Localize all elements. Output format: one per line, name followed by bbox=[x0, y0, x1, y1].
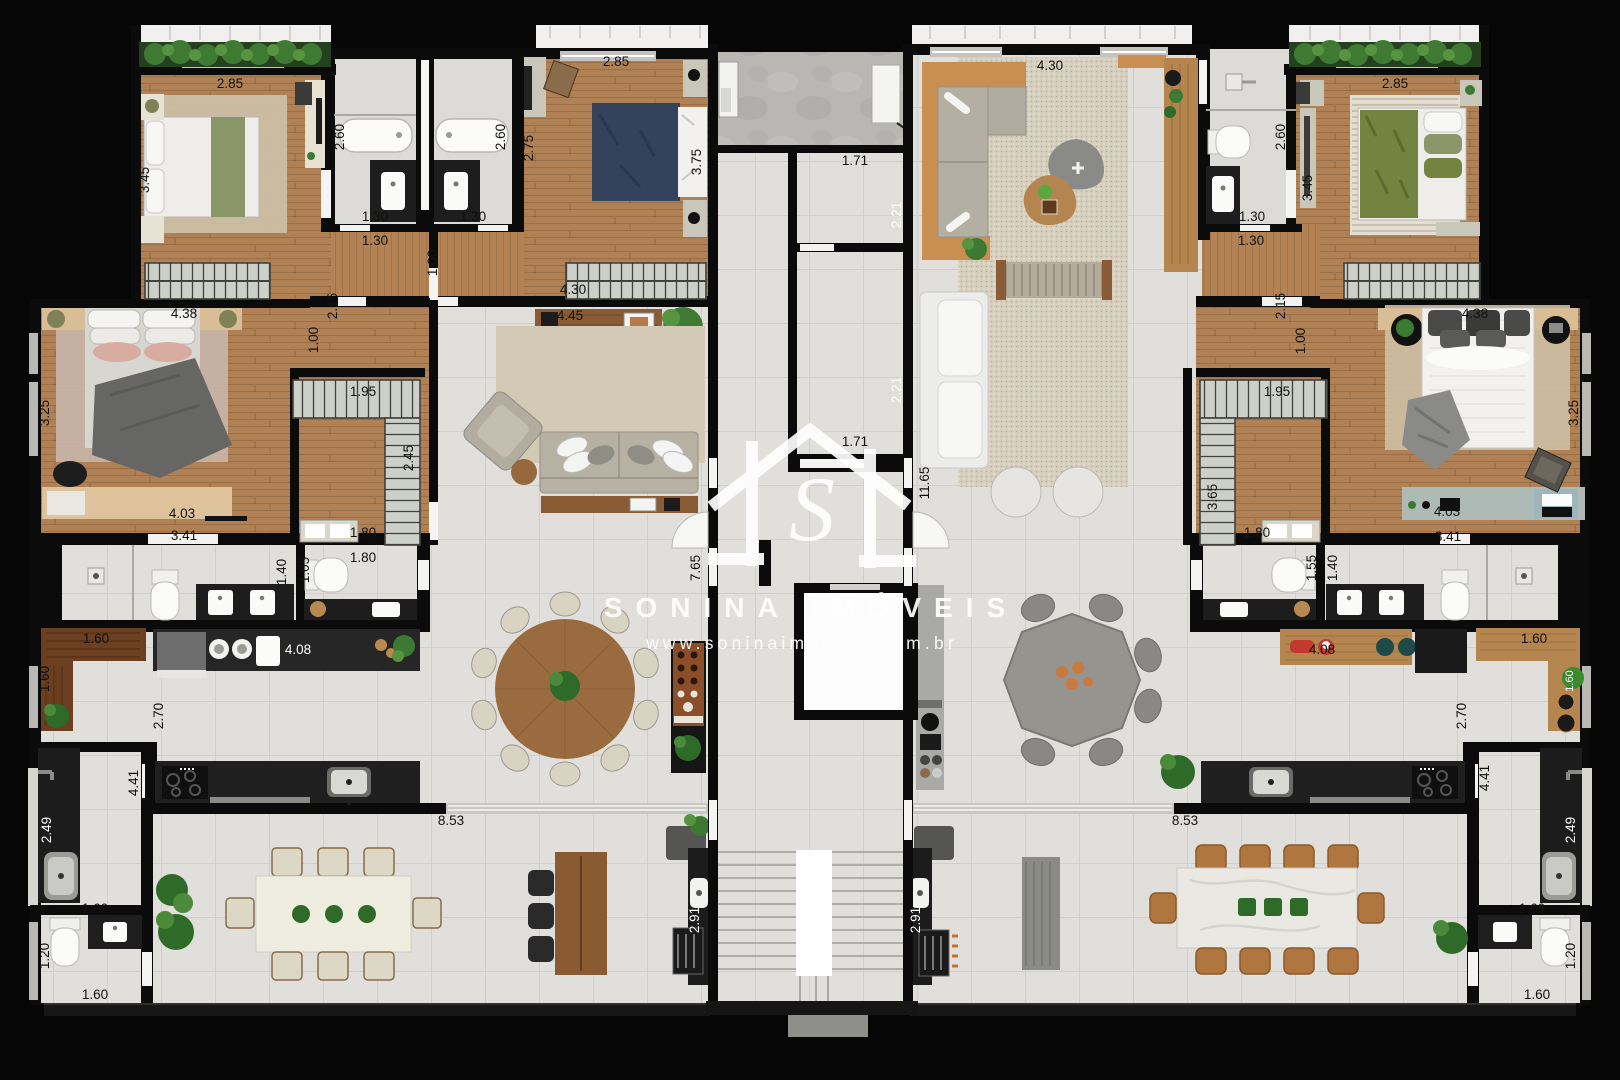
svg-text:3.25: 3.25 bbox=[37, 400, 52, 426]
svg-text:2.45: 2.45 bbox=[401, 445, 416, 471]
svg-text:1.60: 1.60 bbox=[82, 987, 108, 1002]
svg-text:4.03: 4.03 bbox=[1434, 504, 1460, 519]
svg-text:1.60: 1.60 bbox=[1524, 987, 1550, 1002]
svg-text:1.60: 1.60 bbox=[1519, 901, 1545, 916]
svg-text:www.soninaimoveis.com.br: www.soninaimoveis.com.br bbox=[645, 633, 958, 653]
svg-text:3.45: 3.45 bbox=[1300, 175, 1315, 201]
svg-text:8.53: 8.53 bbox=[438, 813, 464, 828]
svg-text:2.70: 2.70 bbox=[1454, 703, 1469, 729]
svg-text:1.30: 1.30 bbox=[1238, 233, 1264, 248]
svg-text:2.15: 2.15 bbox=[1273, 293, 1288, 319]
svg-text:1.40: 1.40 bbox=[274, 559, 289, 585]
svg-text:2.85: 2.85 bbox=[217, 76, 243, 91]
svg-text:1.60: 1.60 bbox=[82, 901, 108, 916]
svg-text:3.41: 3.41 bbox=[171, 528, 197, 543]
svg-text:4.41: 4.41 bbox=[1477, 765, 1492, 791]
svg-text:2.85: 2.85 bbox=[603, 54, 629, 69]
svg-text:1.80: 1.80 bbox=[350, 550, 376, 565]
svg-text:4.08: 4.08 bbox=[1309, 642, 1335, 657]
svg-text:1.60: 1.60 bbox=[83, 631, 109, 646]
svg-text:1.30: 1.30 bbox=[1239, 209, 1265, 224]
svg-text:7.65: 7.65 bbox=[688, 555, 703, 581]
svg-text:3.45: 3.45 bbox=[137, 167, 152, 193]
svg-text:1.71: 1.71 bbox=[842, 434, 868, 449]
svg-text:2.21: 2.21 bbox=[889, 377, 904, 403]
svg-text:1.95: 1.95 bbox=[1264, 384, 1290, 399]
svg-text:3.75: 3.75 bbox=[689, 149, 704, 175]
svg-text:1.20: 1.20 bbox=[37, 943, 52, 969]
svg-text:2.70: 2.70 bbox=[151, 703, 166, 729]
svg-text:1.55: 1.55 bbox=[1304, 555, 1319, 581]
svg-text:2.75: 2.75 bbox=[521, 135, 536, 161]
svg-text:1.30: 1.30 bbox=[362, 209, 388, 224]
svg-text:4.30: 4.30 bbox=[1037, 58, 1063, 73]
svg-text:2.15: 2.15 bbox=[325, 293, 340, 319]
svg-text:1.95: 1.95 bbox=[350, 384, 376, 399]
svg-text:1.80: 1.80 bbox=[1244, 525, 1270, 540]
svg-text:1.00: 1.00 bbox=[1293, 328, 1308, 354]
svg-text:4.30: 4.30 bbox=[560, 282, 586, 297]
svg-text:3.25: 3.25 bbox=[1566, 400, 1581, 426]
svg-text:1.30: 1.30 bbox=[460, 209, 486, 224]
svg-text:1.60: 1.60 bbox=[37, 666, 52, 692]
svg-text:1.80: 1.80 bbox=[350, 525, 376, 540]
svg-text:2.60: 2.60 bbox=[493, 124, 508, 150]
svg-text:1.71: 1.71 bbox=[842, 153, 868, 168]
svg-text:1.00: 1.00 bbox=[306, 327, 321, 353]
svg-text:1.20: 1.20 bbox=[1563, 943, 1578, 969]
svg-text:2.49: 2.49 bbox=[39, 817, 54, 843]
svg-text:1.60: 1.60 bbox=[1521, 631, 1547, 646]
svg-text:4.45: 4.45 bbox=[557, 308, 583, 323]
svg-text:2.60: 2.60 bbox=[1273, 124, 1288, 150]
svg-text:SONINA IMÓVEIS: SONINA IMÓVEIS bbox=[604, 592, 1018, 623]
svg-text:8.53: 8.53 bbox=[1172, 813, 1198, 828]
svg-text:3.41: 3.41 bbox=[1435, 529, 1461, 544]
svg-text:2.60: 2.60 bbox=[332, 124, 347, 150]
svg-text:11.65: 11.65 bbox=[917, 467, 932, 500]
svg-text:3.65: 3.65 bbox=[1205, 484, 1220, 510]
svg-text:2.49: 2.49 bbox=[1563, 817, 1578, 843]
svg-text:1.40: 1.40 bbox=[1325, 555, 1340, 581]
svg-text:4.38: 4.38 bbox=[1462, 306, 1488, 321]
svg-text:2.21: 2.21 bbox=[889, 202, 904, 228]
svg-text:4.03: 4.03 bbox=[169, 506, 195, 521]
svg-text:1.00: 1.00 bbox=[425, 250, 440, 276]
svg-text:4.38: 4.38 bbox=[171, 306, 197, 321]
svg-text:2.85: 2.85 bbox=[1382, 76, 1408, 91]
svg-text:S: S bbox=[789, 458, 835, 560]
svg-text:2.91: 2.91 bbox=[908, 907, 923, 933]
svg-text:2.91: 2.91 bbox=[687, 907, 702, 933]
svg-text:1.60: 1.60 bbox=[1564, 670, 1576, 691]
svg-text:1.05: 1.05 bbox=[297, 557, 312, 583]
svg-text:4.41: 4.41 bbox=[126, 770, 141, 796]
svg-text:4.08: 4.08 bbox=[285, 642, 311, 657]
svg-text:1.30: 1.30 bbox=[362, 233, 388, 248]
